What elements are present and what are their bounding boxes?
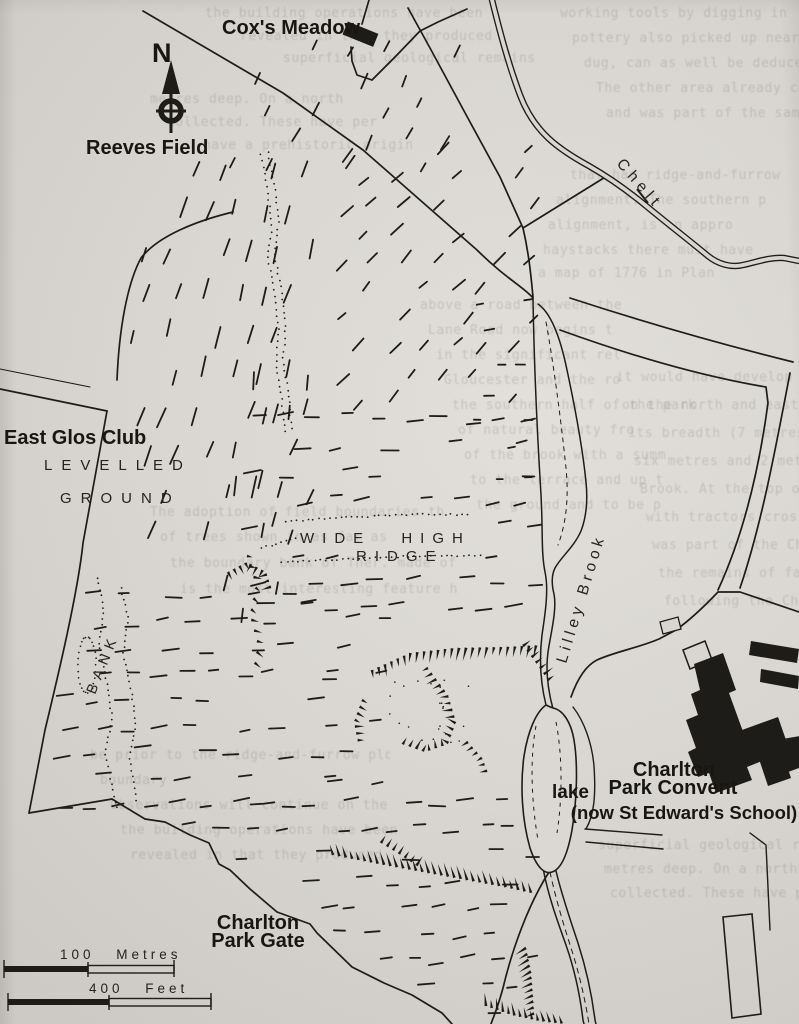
reeves-field-curve	[117, 212, 233, 380]
metres-open-half	[88, 966, 174, 974]
coxs-meadow-label: Cox's Meadow	[222, 17, 361, 39]
drive-line-1	[585, 829, 662, 835]
lake-label: lake	[552, 782, 589, 803]
ridge-and-furrow-marks	[54, 41, 543, 1014]
west-hedge	[0, 389, 107, 411]
east-edge-line	[750, 833, 770, 930]
west-hedge-thin	[0, 369, 90, 387]
brook-below-lake-east	[556, 871, 596, 1024]
brook-west-bank	[533, 298, 547, 705]
earthwork-survey-map: N Cox's Meadow Reeves Field East Glos Cl…	[0, 0, 799, 1024]
east-boundary-1	[570, 298, 793, 362]
chelt-river	[492, 0, 799, 266]
feet-solid-half	[8, 999, 109, 1005]
east-boundary-3	[740, 373, 790, 588]
road-north	[408, 8, 533, 297]
convent-label-line3: (now St Edward's School)	[571, 802, 797, 823]
wide-high-label: WIDE HIGH	[300, 530, 471, 547]
ground-label: GROUND	[60, 490, 181, 507]
brook-below-lake-west	[543, 868, 584, 1024]
east-glos-club-label: East Glos Club	[4, 427, 146, 449]
levelled-label: LEVELLED	[44, 457, 192, 474]
chelt-water	[492, 0, 799, 266]
brook-below-lake-center	[550, 872, 589, 1024]
north-label: N	[152, 38, 172, 68]
map-labels: N Cox's Meadow Reeves Field East Glos Cl…	[4, 17, 797, 996]
drive-outbuilding	[660, 617, 681, 634]
convent-block-bar-1	[749, 641, 799, 663]
feet-open-half	[109, 999, 211, 1007]
lilley-brook-label: Lilley Brook	[554, 532, 609, 665]
scale-feet-label: 400 Feet	[89, 981, 188, 996]
metres-solid-half	[4, 966, 88, 972]
map-page: the building operations have beenreveale…	[0, 0, 799, 1024]
bridge-path	[351, 47, 372, 80]
bridge-stem	[362, 0, 369, 24]
scale-metres-label: 100 Metres	[60, 947, 182, 962]
gate-label-line2: Park Gate	[211, 930, 304, 952]
scale-bar-metres	[4, 960, 174, 978]
reeves-field-label: Reeves Field	[86, 137, 208, 159]
chelt-banks	[492, 0, 799, 266]
drive-line-2	[586, 842, 663, 849]
outlined-building-southeast	[723, 914, 761, 1018]
convent-block-bar-2	[760, 669, 799, 689]
boundary-southwest-of-brook	[491, 872, 549, 1024]
bank-and-ditch-dots	[77, 151, 481, 808]
north-arrow	[156, 60, 186, 133]
convent-label-line2: Park Convent	[609, 777, 738, 799]
road-to-bridge	[372, 9, 467, 80]
bank-label: BANK	[84, 632, 123, 697]
ridge-label: RIDGE	[356, 548, 444, 565]
